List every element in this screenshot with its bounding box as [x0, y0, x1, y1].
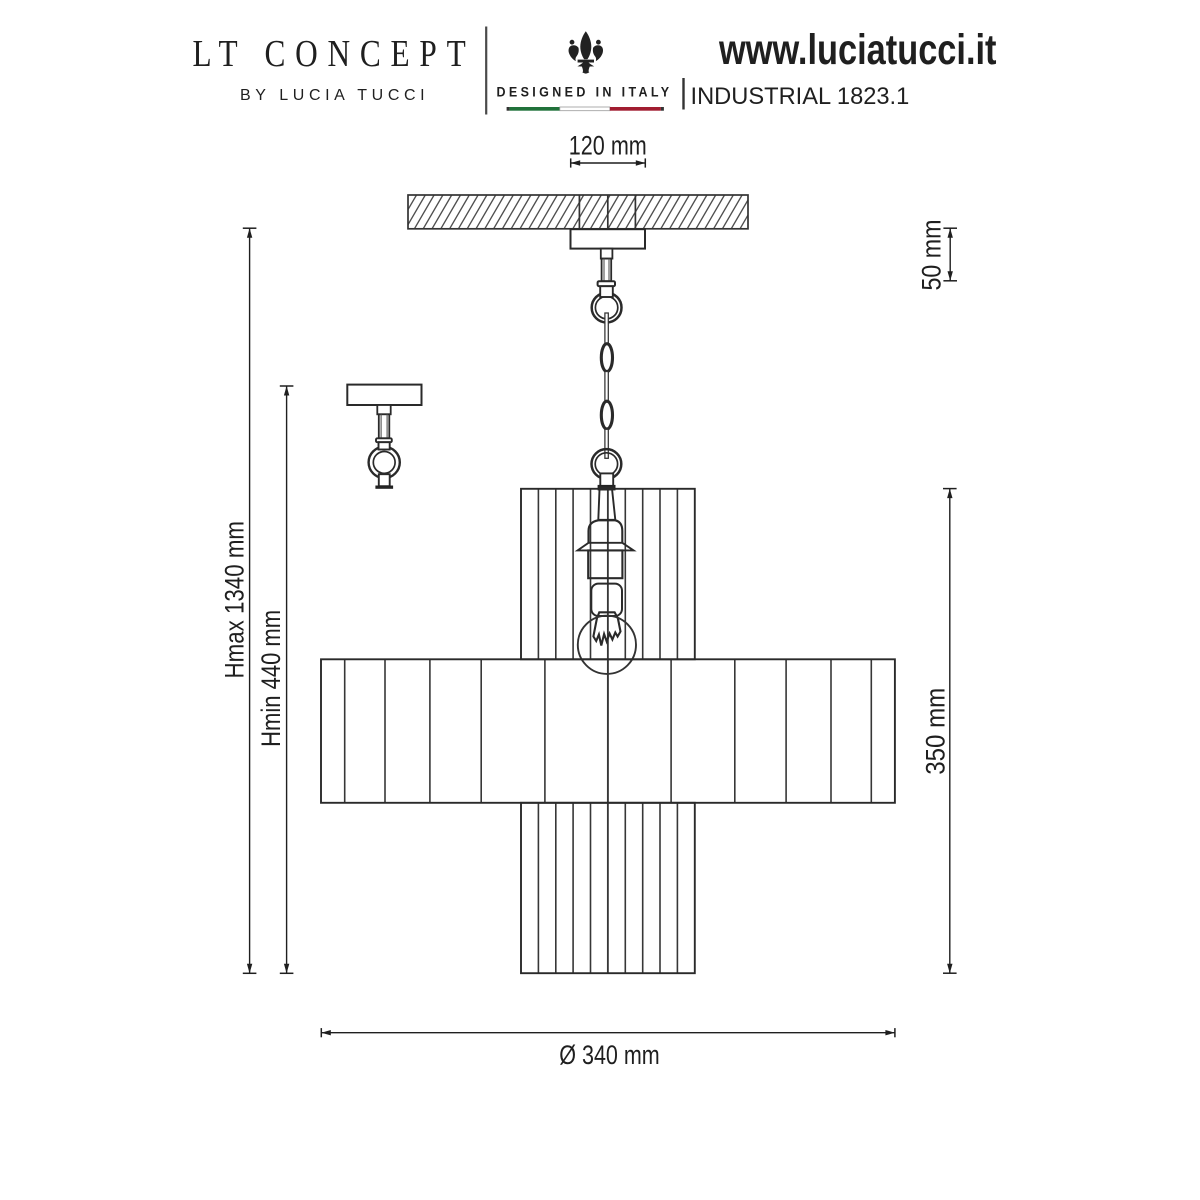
svg-text:DESIGNED IN ITALY: DESIGNED IN ITALY	[497, 85, 673, 100]
svg-text:LT CONCEPT: LT CONCEPT	[193, 33, 476, 75]
svg-text:350 mm: 350 mm	[920, 688, 950, 775]
svg-text:120 mm: 120 mm	[569, 131, 647, 161]
svg-text:Hmin 440 mm: Hmin 440 mm	[256, 610, 286, 747]
svg-text:Ø 340 mm: Ø 340 mm	[559, 1040, 660, 1070]
svg-text:Hmax 1340 mm: Hmax 1340 mm	[219, 521, 249, 679]
svg-text:50 mm: 50 mm	[917, 220, 947, 291]
svg-text:www.luciatucci.it: www.luciatucci.it	[718, 27, 996, 74]
svg-text:BY LUCIA TUCCI: BY LUCIA TUCCI	[240, 87, 429, 104]
svg-text:INDUSTRIAL 1823.1: INDUSTRIAL 1823.1	[691, 84, 910, 110]
